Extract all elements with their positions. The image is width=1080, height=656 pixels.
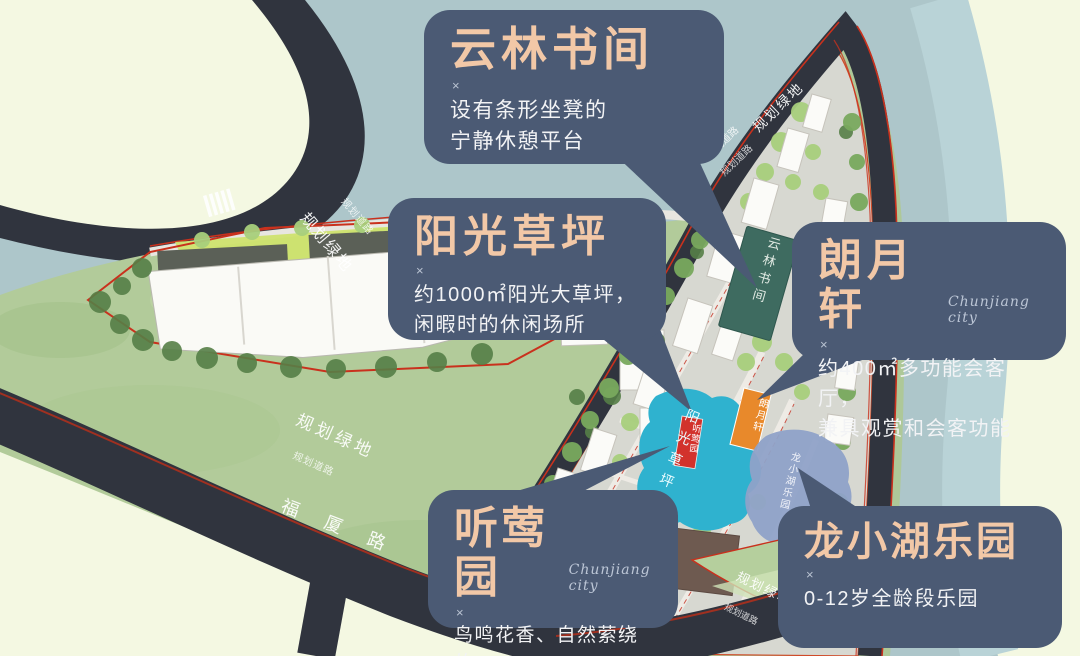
callout-yangguang-caoping: 阳光草坪 × 约1000㎡阳光大草坪， 闲暇时的休闲场所	[388, 198, 666, 340]
callout-desc-line: 鸟鸣花香、自然萦绕的	[454, 622, 654, 656]
callout-yunlin-shujian: 云林书间 × 设有条形坐凳的 宁静休憩平台	[424, 10, 724, 164]
callout-longxiaohu-leyuan: 龙小湖乐园 × 0-12岁全龄段乐园	[778, 506, 1062, 648]
callout-desc-line: 约400㎡多功能会客厅，	[818, 354, 1042, 414]
callout-title: 云林书间	[450, 24, 654, 76]
x-marker: ×	[820, 338, 1042, 351]
callout-title: 阳光草坪	[414, 212, 610, 261]
callout-title: 听莺园	[454, 504, 557, 603]
x-marker: ×	[806, 568, 1038, 581]
x-marker: ×	[416, 264, 642, 277]
site-plan-poster: 规划绿地 规划道路 规划绿地 规划道路 福厦路 规划绿地 规划道路 规划道路 规…	[0, 0, 1080, 656]
callout-desc-line: 兼具观赏和会客功能	[818, 414, 1042, 444]
brand-script-watermark: Chunjiang city	[569, 562, 654, 603]
callout-tingying-yuan: 听莺园 Chunjiang city × 鸟鸣花香、自然萦绕的 景观会客厅	[428, 490, 678, 628]
x-marker: ×	[456, 606, 654, 619]
callout-langyue-xuan: 朗月轩 Chunjiang city × 约400㎡多功能会客厅， 兼具观赏和会…	[792, 222, 1066, 360]
callout-title: 龙小湖乐园	[804, 520, 1019, 565]
callout-desc-line: 设有条形坐凳的	[450, 95, 700, 127]
callout-desc-line: 闲暇时的休闲场所	[414, 310, 642, 340]
callout-title: 朗月轩	[818, 236, 936, 335]
x-marker: ×	[452, 79, 700, 92]
brand-script-watermark: Chunjiang city	[948, 294, 1042, 335]
callout-desc-line: 0-12岁全龄段乐园	[804, 584, 1038, 614]
callout-desc-line: 宁静休憩平台	[450, 126, 700, 158]
fuxia-road-branch	[316, 546, 336, 656]
callout-desc-line: 约1000㎡阳光大草坪，	[414, 280, 642, 310]
